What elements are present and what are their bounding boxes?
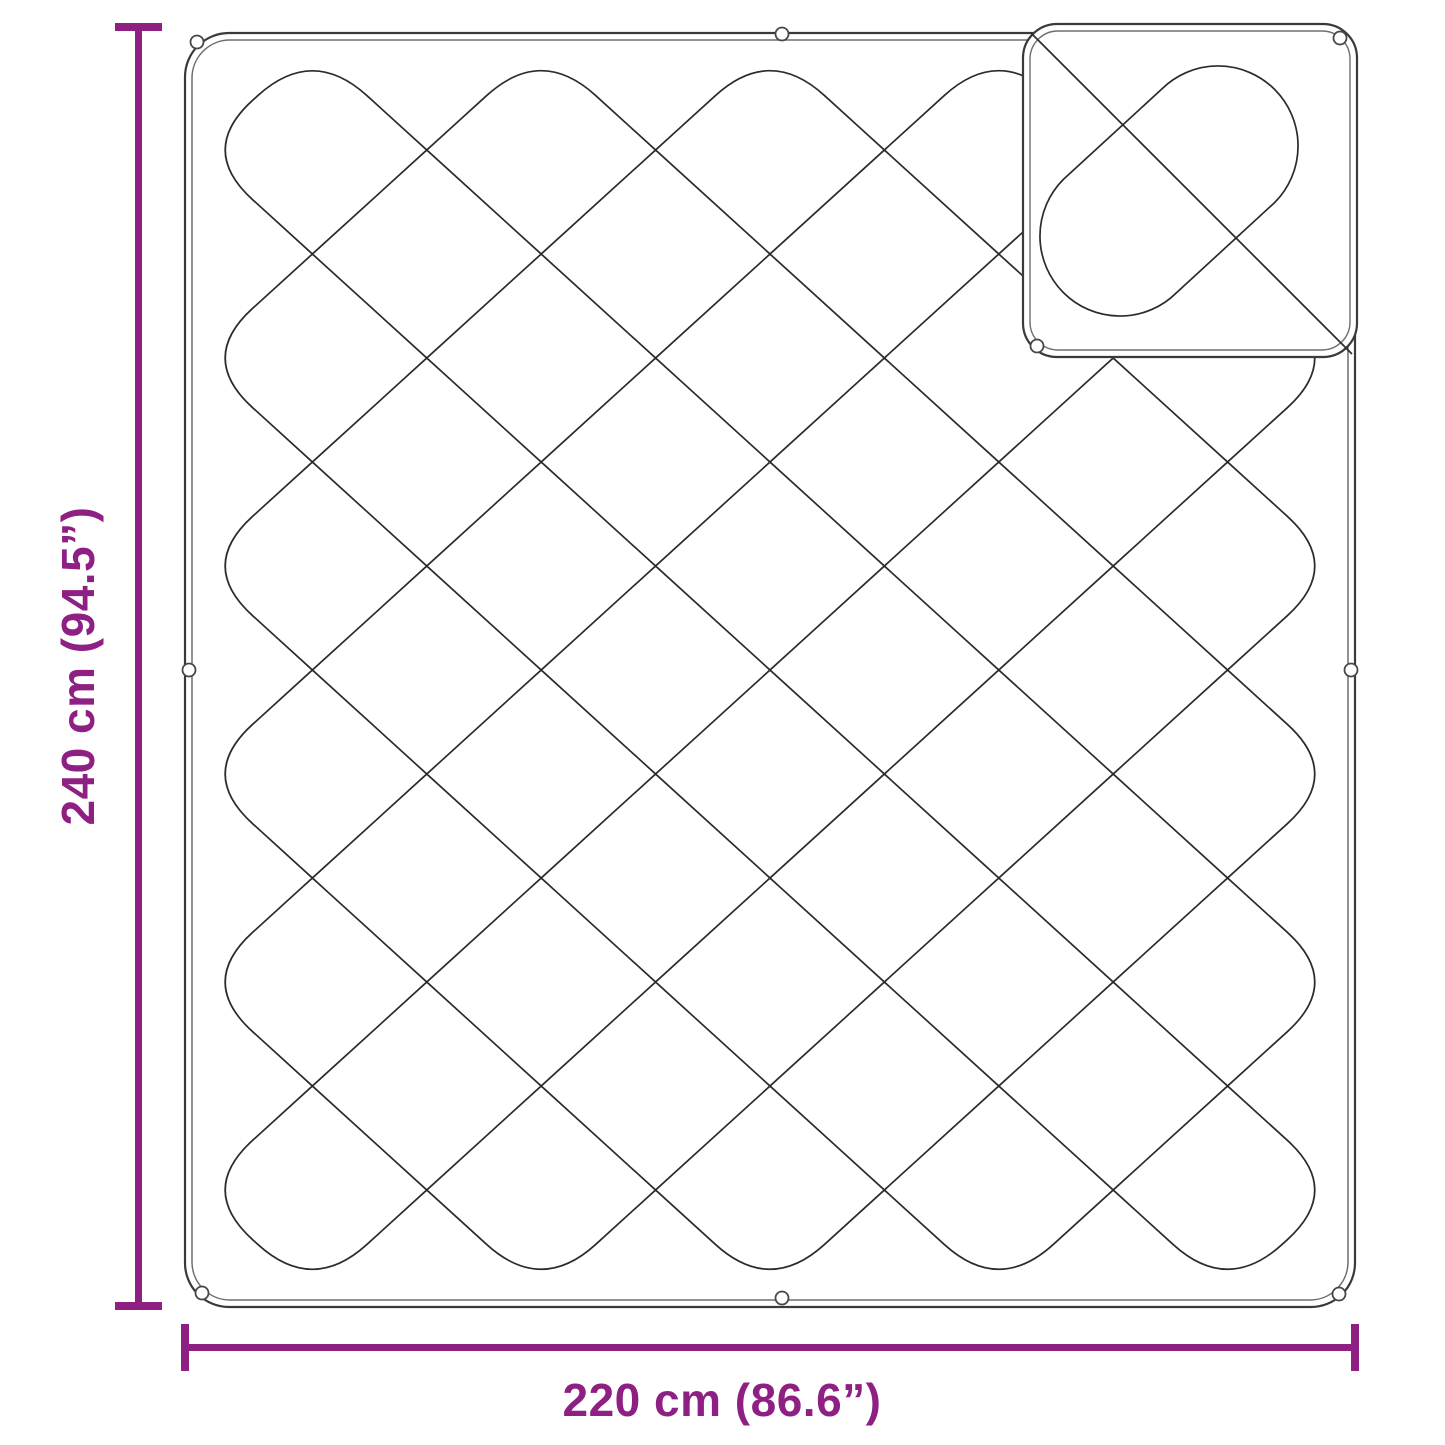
loop-top-middle	[776, 28, 789, 41]
loop-bottom-right	[1333, 1288, 1346, 1301]
blanket-diagram-canvas: 240 cm (94.5”) 220 cm (86.6”)	[0, 0, 1445, 1445]
loop-left-middle	[183, 664, 196, 677]
flap-loop-bottom-left	[1031, 340, 1044, 353]
loop-bottom-middle	[776, 1292, 789, 1305]
loop-bottom-left	[196, 1287, 209, 1300]
width-dim-label: 220 cm (86.6”)	[563, 1374, 882, 1426]
height-dim-line	[135, 27, 142, 1306]
product-dimension-diagram: 240 cm (94.5”) 220 cm (86.6”)	[0, 0, 1445, 1445]
folded-corner-flap	[1023, 24, 1357, 357]
loop-top-left	[191, 36, 204, 49]
height-dim-cap-bottom	[115, 1302, 162, 1310]
loop-right-middle	[1345, 664, 1358, 677]
flap-loop-top-right	[1334, 32, 1347, 45]
width-dim-cap-right	[1351, 1324, 1359, 1371]
width-dim-line	[185, 1344, 1356, 1351]
height-dim-label: 240 cm (94.5”)	[52, 507, 104, 826]
